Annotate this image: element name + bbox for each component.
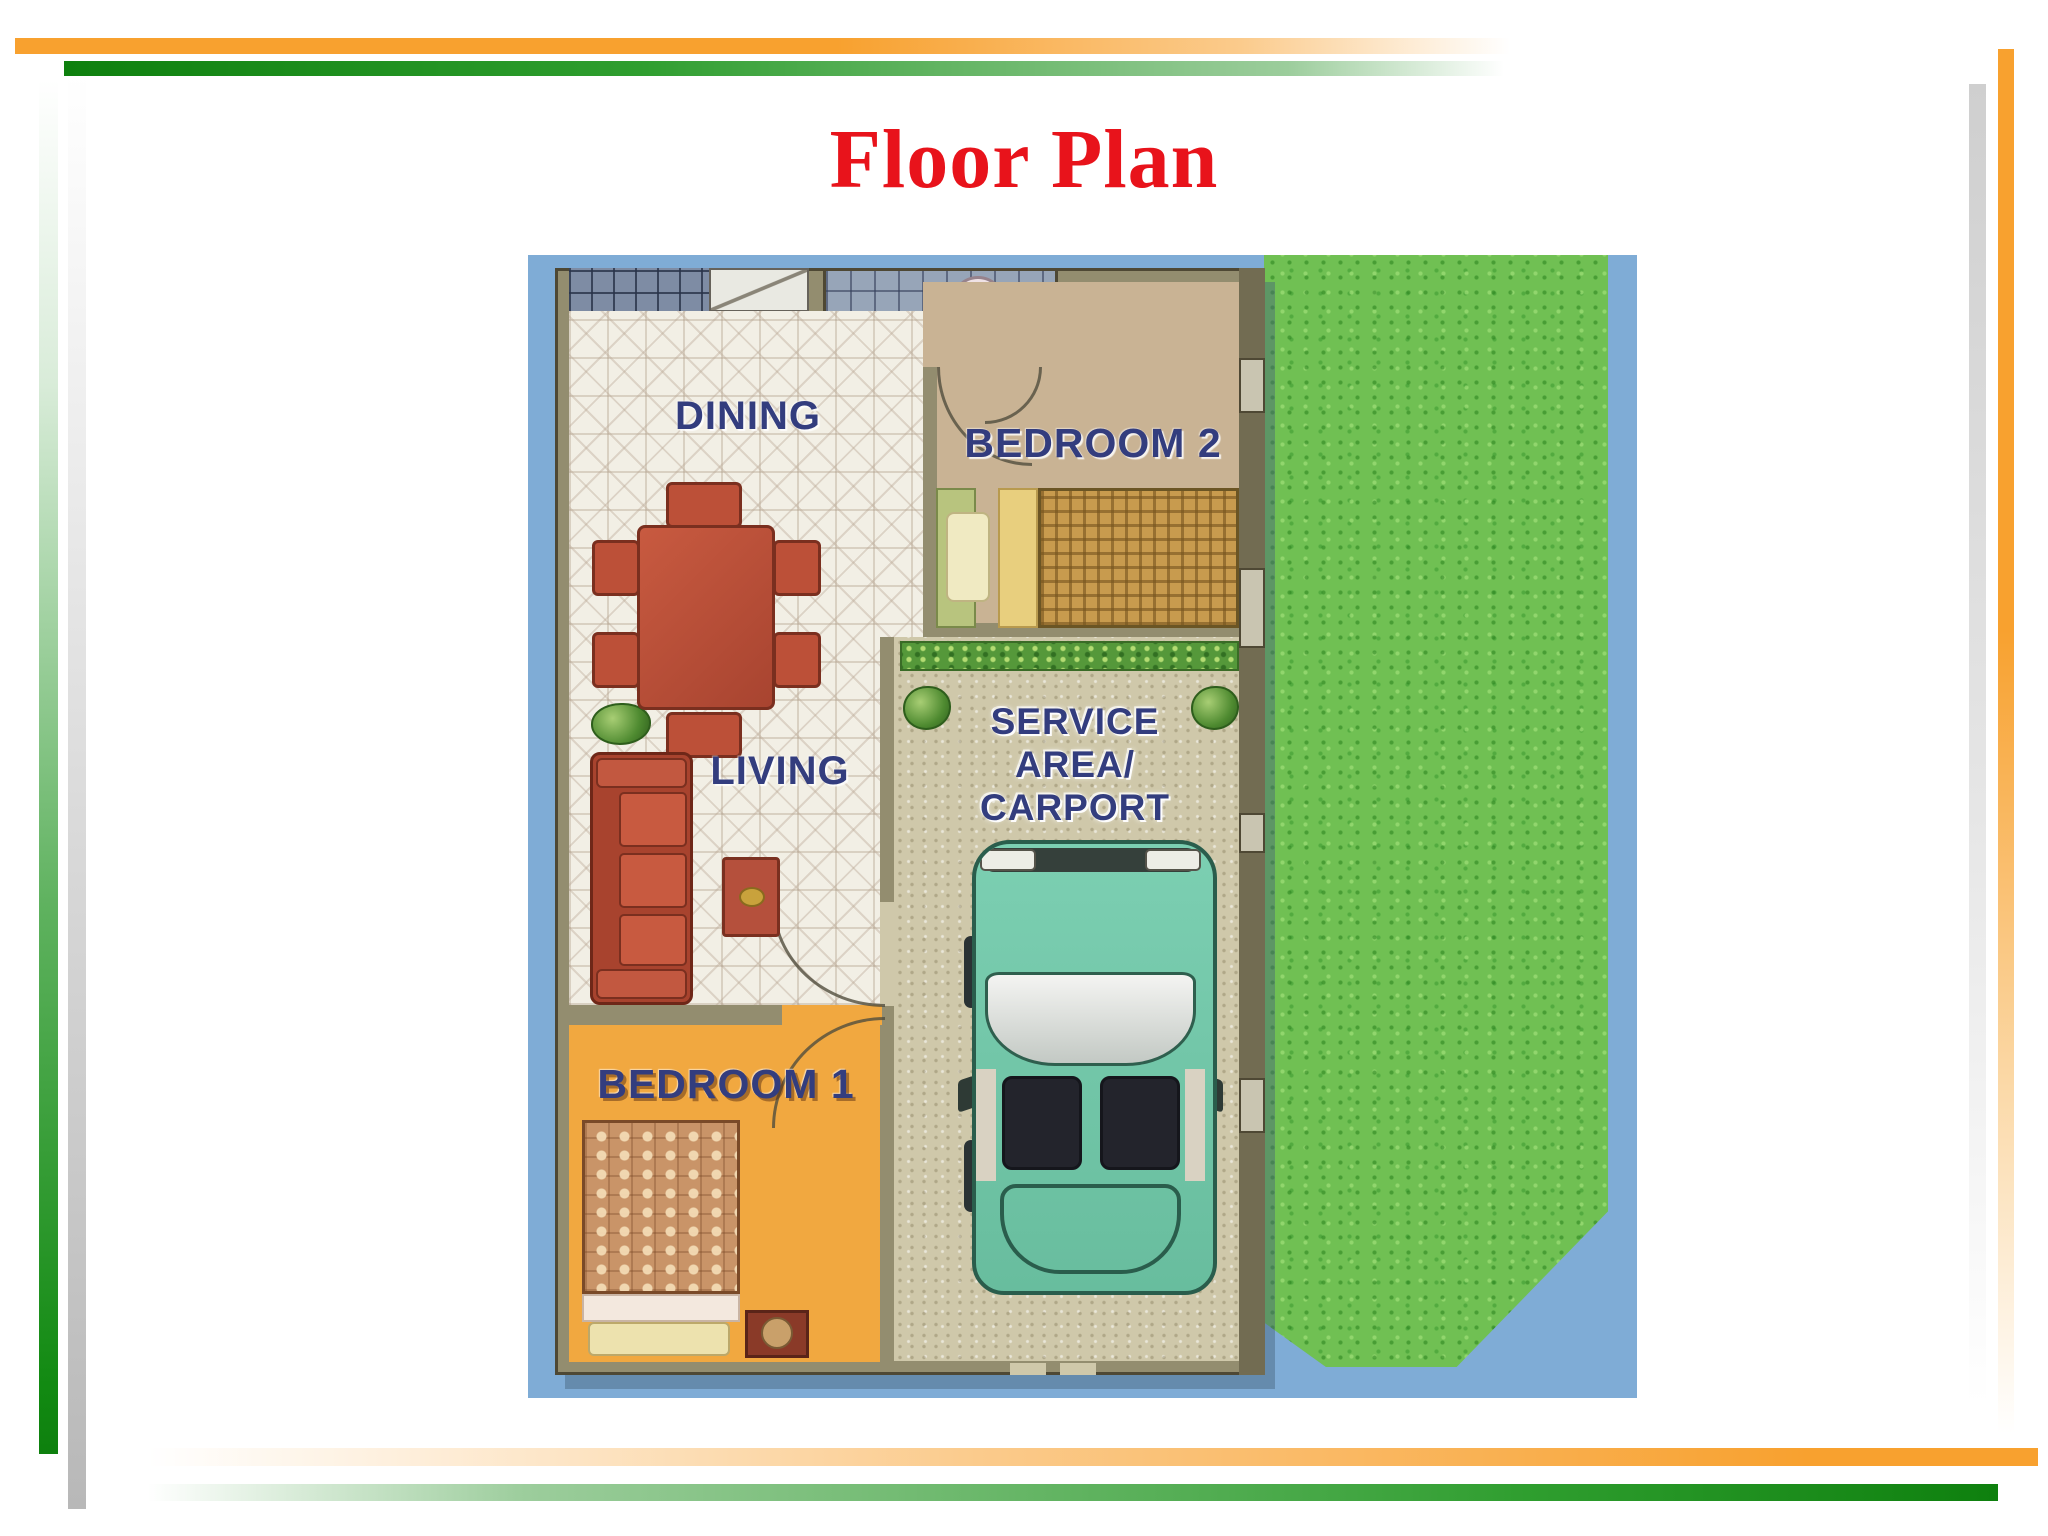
fan-blade [761,1317,793,1349]
window [1239,358,1265,413]
page-title: Floor Plan [0,118,2048,202]
bed1-blanket [582,1120,740,1294]
dining-label: DINING [598,394,898,439]
gate-gap [1010,1363,1046,1375]
car-headlight [1145,849,1201,871]
lawn [1264,255,1608,1367]
car-sunroof [1100,1076,1180,1170]
car-rear-window [1000,1184,1181,1274]
car-headlight [980,849,1036,871]
bedroom1-label: BEDROOM 1 [576,1061,876,1108]
bedroom2-label: BEDROOM 2 [943,420,1243,467]
sofa-cushion [619,792,687,847]
sofa-armrest [596,969,687,999]
right-orange-bar [1998,49,2014,1434]
bed1-pillow [588,1322,730,1356]
table-decor [739,887,765,907]
dining-chair [592,540,640,596]
window [1239,568,1265,648]
left-gray-bar [68,75,86,1509]
floor-plan-image: DINING BEDROOM 2 LIVING BEDROOM 1 SERVIC… [528,255,1637,1398]
sofa-cushion [619,914,687,966]
slide: Floor Plan [0,0,2048,1536]
car-side-sill [976,1069,996,1181]
bedside-fan [745,1310,809,1358]
dining-chair [773,632,821,688]
car-sunroof [1002,1076,1082,1170]
car-windshield [985,972,1196,1066]
service-label-line2: AREA/ [950,743,1200,786]
car-side-sill [1185,1069,1205,1181]
right-gray-bar [1969,84,1986,1404]
bottom-orange-bar [110,1448,2038,1466]
kitchen-counter [569,268,709,316]
coffee-table [722,857,780,937]
window [1239,1078,1265,1133]
car [958,840,1223,1287]
sofa-cushion [619,853,687,908]
house-outline: DINING BEDROOM 2 LIVING BEDROOM 1 SERVIC… [555,268,1265,1375]
dining-chair [592,632,640,688]
dining-table [637,525,775,710]
bottom-green-bar [110,1484,1998,1501]
bed1-sheet [582,1294,740,1322]
left-green-bar [39,80,58,1454]
top-green-bar [64,61,1504,76]
gate-gap [1060,1363,1096,1375]
bedroom2-doorway [923,282,937,367]
car-body [972,840,1217,1295]
dining-chair [666,482,742,528]
bed2-sheet [998,488,1038,628]
window [1239,813,1265,853]
service-area-label: SERVICE AREA/ CARPORT [950,700,1200,829]
service-label-line1: SERVICE [950,700,1200,743]
bed2-blanket [1038,488,1239,628]
hedge [900,641,1239,671]
bed2-pillow [946,512,990,602]
kitchen-sink [709,268,809,312]
living-label: LIVING [630,749,930,794]
top-orange-bar [15,38,1510,54]
service-label-line3: CARPORT [950,786,1200,829]
dining-chair [773,540,821,596]
